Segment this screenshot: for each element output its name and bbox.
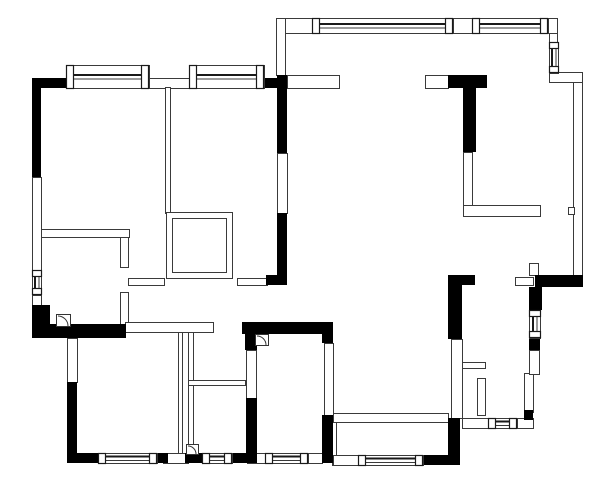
partition-wall — [549, 19, 558, 34]
partition-wall — [277, 19, 286, 76]
partition-wall — [189, 381, 246, 386]
structural-wall — [448, 75, 487, 88]
partition-wall — [530, 264, 539, 276]
floor-plan-svg — [0, 0, 600, 483]
window-symbol — [359, 456, 424, 466]
partition-wall — [121, 238, 129, 268]
structural-wall — [67, 382, 77, 463]
window-end-cap — [530, 332, 541, 338]
window-end-cap — [150, 454, 157, 464]
partition-wall — [33, 178, 42, 272]
partition-wall — [530, 351, 540, 375]
partition-wall — [173, 219, 227, 273]
structural-wall — [463, 88, 476, 152]
window-end-cap — [473, 19, 480, 34]
partition-wall — [42, 230, 130, 238]
window-symbol — [473, 19, 549, 34]
window-end-cap — [67, 66, 74, 89]
partition-wall — [126, 323, 214, 333]
structural-wall — [535, 275, 583, 287]
partition-wall — [129, 279, 165, 286]
partition-wall — [452, 340, 463, 419]
partition-wall — [334, 414, 449, 423]
window-end-cap — [530, 311, 541, 317]
structural-wall — [423, 455, 458, 465]
floor-plan-canvas — [0, 0, 600, 483]
partition-wall — [278, 154, 288, 214]
partition-wall — [516, 278, 534, 286]
window-end-cap — [416, 456, 423, 466]
partition-wall — [121, 293, 129, 326]
partition-wall — [68, 339, 78, 383]
partition-wall — [288, 76, 340, 89]
window-end-cap — [257, 66, 264, 89]
partition-wall — [309, 454, 323, 464]
partition-wall — [238, 279, 268, 286]
partition-wall — [334, 456, 359, 466]
structural-wall — [246, 398, 257, 463]
window-end-cap — [33, 289, 42, 295]
window-symbol — [313, 19, 454, 34]
window-end-cap — [266, 454, 273, 464]
window-symbol — [99, 454, 158, 464]
structural-wall — [524, 410, 533, 420]
window-end-cap — [190, 66, 197, 89]
partition-wall — [325, 344, 334, 416]
structural-wall — [32, 324, 126, 338]
partition-wall — [166, 88, 171, 214]
structural-wall — [277, 213, 287, 285]
window-symbol — [67, 66, 150, 89]
window-end-cap — [142, 66, 149, 89]
window-end-cap — [313, 19, 320, 34]
partition-wall — [478, 379, 486, 416]
window-end-cap — [33, 271, 42, 277]
partition-wall — [525, 374, 534, 413]
partition-wall — [464, 206, 541, 217]
window-end-cap — [550, 67, 559, 73]
partition-wall — [574, 83, 583, 277]
structural-wall — [448, 275, 462, 339]
partition-wall — [569, 208, 575, 215]
window-end-cap — [550, 43, 559, 49]
window-end-cap — [203, 454, 210, 464]
window-end-cap — [510, 419, 517, 429]
window-end-cap — [359, 456, 366, 466]
window-end-cap — [541, 19, 548, 34]
structural-wall — [529, 338, 540, 350]
window-end-cap — [225, 454, 232, 464]
structural-wall — [157, 453, 168, 463]
window-end-cap — [99, 454, 106, 464]
window-end-cap — [489, 419, 496, 429]
structural-wall — [529, 287, 542, 310]
window-end-cap — [446, 19, 453, 34]
window-symbol — [190, 66, 265, 89]
structural-wall — [277, 75, 287, 153]
structural-wall — [67, 453, 98, 463]
partition-wall — [426, 76, 449, 89]
structural-wall — [266, 275, 287, 285]
structural-wall — [322, 415, 333, 463]
partition-wall — [179, 333, 183, 458]
structural-wall — [232, 453, 247, 463]
structural-wall — [242, 322, 333, 334]
partition-wall — [247, 351, 257, 399]
partition-wall — [454, 19, 473, 34]
structural-wall — [32, 78, 41, 177]
partition-wall — [464, 153, 473, 209]
structural-wall — [32, 78, 68, 88]
structural-wall — [322, 334, 333, 343]
partition-wall — [189, 333, 194, 458]
window-end-cap — [301, 454, 308, 464]
